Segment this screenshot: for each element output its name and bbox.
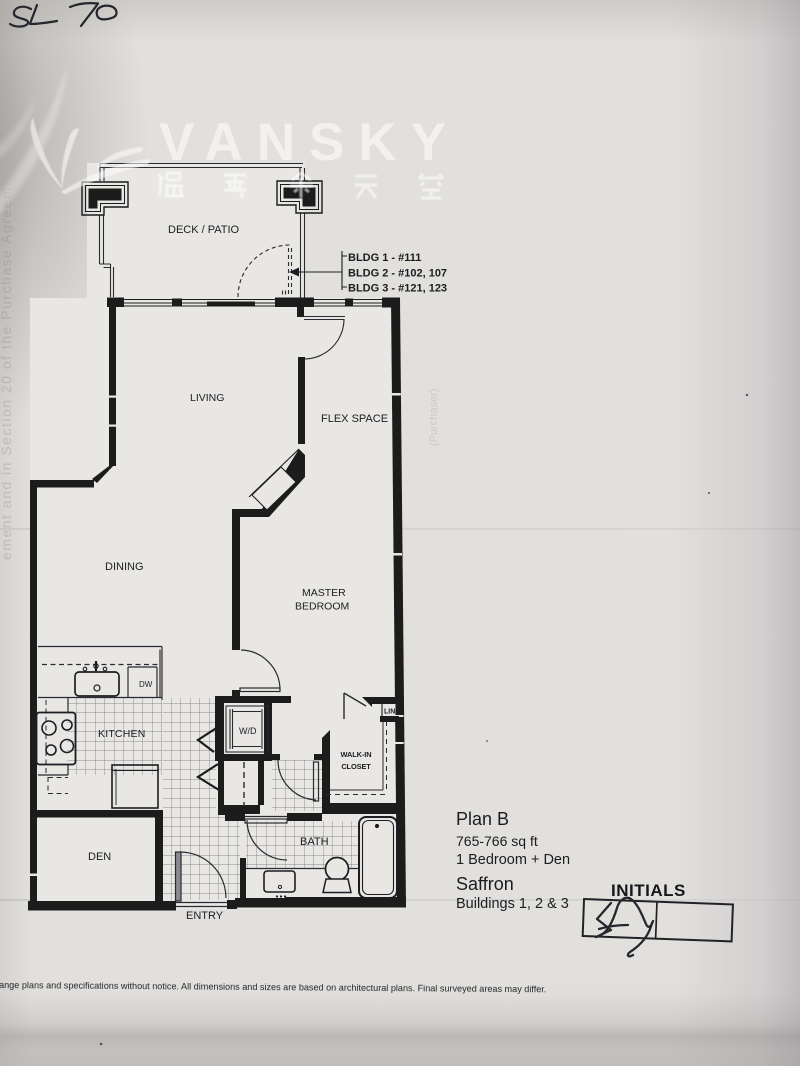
svg-text:FLEX SPACE: FLEX SPACE: [321, 413, 388, 425]
svg-text:MASTER: MASTER: [302, 587, 346, 599]
svg-text:DECK / PATIO: DECK / PATIO: [168, 224, 240, 236]
svg-text:ENTRY: ENTRY: [186, 910, 224, 922]
svg-text:765-766 sq ft: 765-766 sq ft: [456, 833, 538, 849]
svg-text:Saffron: Saffron: [456, 874, 514, 894]
svg-text:DEN: DEN: [88, 851, 111, 863]
svg-text:INITIALS: INITIALS: [611, 881, 686, 900]
svg-text:VANSKY: VANSKY: [159, 113, 460, 172]
svg-text:BLDG 1 - #111: BLDG 1 - #111: [348, 252, 421, 264]
svg-text:DW: DW: [139, 680, 153, 689]
svg-text:Buildings 1, 2 & 3: Buildings 1, 2 & 3: [456, 896, 569, 912]
svg-text:KITCHEN: KITCHEN: [98, 728, 146, 740]
svg-text:WALK-IN: WALK-IN: [341, 750, 372, 759]
svg-text:CLOSET: CLOSET: [341, 762, 371, 771]
svg-text:hange plans and specifications: hange plans and specifications without n…: [0, 980, 546, 994]
svg-text:1 Bedroom + Den: 1 Bedroom + Den: [456, 852, 570, 868]
svg-text:BLDG 3 - #121, 123: BLDG 3 - #121, 123: [348, 283, 447, 295]
svg-text:LIN: LIN: [384, 709, 395, 716]
svg-text:DINING: DINING: [105, 561, 144, 573]
svg-text:LIVING: LIVING: [190, 392, 224, 404]
svg-text:BEDROOM: BEDROOM: [295, 601, 349, 613]
svg-text:BATH: BATH: [300, 836, 329, 848]
svg-text:Plan B: Plan B: [456, 809, 509, 829]
svg-text:W/D: W/D: [239, 726, 257, 736]
svg-text:BLDG 2 - #102, 107: BLDG 2 - #102, 107: [348, 268, 447, 280]
